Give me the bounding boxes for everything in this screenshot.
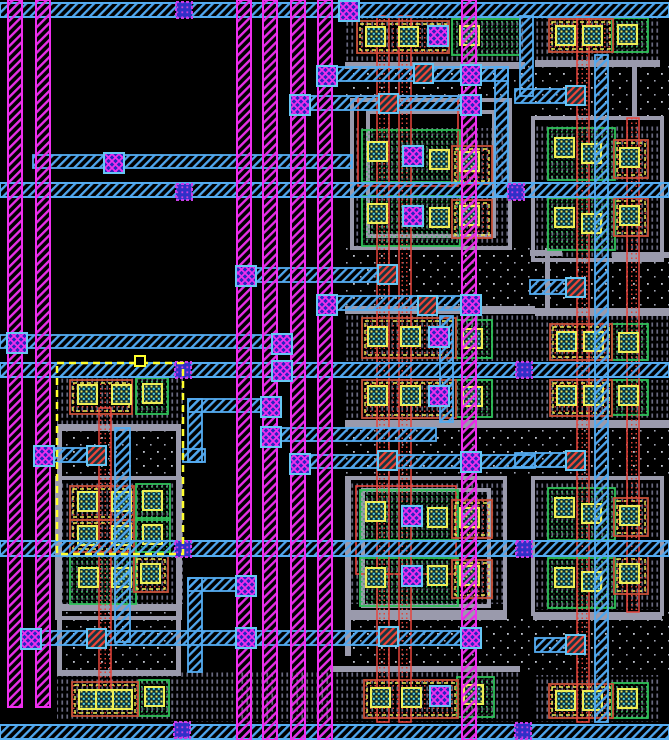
via-blue[interactable]: [508, 184, 524, 200]
contact[interactable]: [618, 25, 637, 44]
contact[interactable]: [145, 687, 164, 706]
substrate-contact[interactable]: [87, 446, 106, 465]
via-m1-m2[interactable]: [261, 397, 281, 417]
via-m1-m2[interactable]: [461, 295, 481, 315]
metal2-stripe[interactable]: [318, 0, 332, 740]
via-m1-m2[interactable]: [430, 686, 450, 706]
via-blue[interactable]: [516, 362, 532, 378]
via-m1-m2[interactable]: [261, 427, 281, 447]
contact[interactable]: [113, 690, 132, 709]
via-blue[interactable]: [174, 722, 190, 738]
via-m1-m2[interactable]: [104, 153, 124, 173]
via-m1-m2[interactable]: [272, 334, 292, 354]
metal1-strap[interactable]: [520, 16, 533, 96]
contact[interactable]: [368, 386, 387, 405]
contact[interactable]: [79, 568, 98, 587]
via-m1-m2[interactable]: [317, 66, 337, 86]
substrate-contact[interactable]: [87, 629, 106, 648]
contact[interactable]: [371, 688, 390, 707]
via-m1-m2[interactable]: [34, 446, 54, 466]
metal2-stripe[interactable]: [36, 0, 50, 707]
via-m1-m2[interactable]: [429, 327, 449, 347]
via-m1-m2[interactable]: [429, 386, 449, 406]
contact[interactable]: [430, 208, 449, 227]
contact[interactable]: [402, 688, 421, 707]
tool-marker[interactable]: [135, 356, 145, 366]
contact[interactable]: [555, 498, 574, 517]
via-m1-m2[interactable]: [236, 628, 256, 648]
substrate-contact[interactable]: [566, 451, 585, 470]
metal1-rail[interactable]: [0, 3, 669, 17]
metal1-strap[interactable]: [115, 428, 130, 642]
well-bar[interactable]: [545, 248, 550, 310]
via-m1-m2[interactable]: [461, 452, 481, 472]
contact[interactable]: [401, 327, 420, 346]
via-m1-m2[interactable]: [236, 266, 256, 286]
well-bar[interactable]: [58, 670, 178, 676]
contact[interactable]: [557, 386, 576, 405]
contact[interactable]: [620, 206, 639, 225]
contact[interactable]: [399, 27, 418, 46]
contact[interactable]: [620, 148, 639, 167]
substrate-contact[interactable]: [378, 265, 397, 284]
via-blue[interactable]: [176, 184, 192, 200]
substrate-contact[interactable]: [414, 64, 433, 83]
well-bar[interactable]: [330, 666, 520, 672]
contact[interactable]: [143, 384, 162, 403]
ic-layout-view[interactable]: [0, 0, 669, 740]
via-m1-m2[interactable]: [461, 65, 481, 85]
contact[interactable]: [556, 26, 575, 45]
contact[interactable]: [619, 386, 638, 405]
contact[interactable]: [78, 385, 97, 404]
contact[interactable]: [620, 506, 639, 525]
metal1-rail[interactable]: [0, 363, 669, 377]
contact[interactable]: [366, 27, 385, 46]
contact[interactable]: [366, 568, 385, 587]
via-m1-m2[interactable]: [403, 146, 423, 166]
substrate-contact[interactable]: [566, 635, 585, 654]
metal1-trace[interactable]: [262, 428, 436, 441]
via-m1-m2[interactable]: [403, 206, 423, 226]
contact[interactable]: [618, 689, 637, 708]
substrate-contact[interactable]: [379, 627, 398, 646]
contact[interactable]: [368, 142, 387, 161]
contact[interactable]: [556, 691, 575, 710]
substrate-contact[interactable]: [378, 451, 397, 470]
metal1-strap[interactable]: [188, 399, 202, 462]
via-m1-m2[interactable]: [290, 95, 310, 115]
via-m1-m2[interactable]: [21, 629, 41, 649]
contact[interactable]: [428, 566, 447, 585]
metal1-strap[interactable]: [188, 578, 202, 672]
contact[interactable]: [368, 204, 387, 223]
metal1-rail[interactable]: [0, 725, 669, 739]
via-m1-m2[interactable]: [339, 1, 359, 21]
via-m1-m2[interactable]: [236, 576, 256, 596]
via-m1-m2[interactable]: [428, 26, 448, 46]
via-m1-m2[interactable]: [461, 628, 481, 648]
substrate-contact[interactable]: [566, 278, 585, 297]
via-m1-m2[interactable]: [290, 454, 310, 474]
contact[interactable]: [619, 333, 638, 352]
via-blue[interactable]: [516, 541, 532, 557]
contact[interactable]: [368, 327, 387, 346]
contact[interactable]: [583, 26, 602, 45]
substrate-contact[interactable]: [418, 296, 437, 315]
substrate-contact[interactable]: [379, 94, 398, 113]
metal1-rail[interactable]: [0, 183, 669, 197]
via-m1-m2[interactable]: [402, 566, 422, 586]
contact[interactable]: [620, 564, 639, 583]
contact[interactable]: [555, 568, 574, 587]
via-m1-m2[interactable]: [272, 361, 292, 381]
substrate-contact[interactable]: [566, 86, 585, 105]
metal1-strap[interactable]: [495, 67, 508, 196]
metal1-strap[interactable]: [595, 55, 608, 722]
via-m1-m2[interactable]: [402, 506, 422, 526]
contact[interactable]: [428, 508, 447, 527]
layout-canvas[interactable]: [0, 0, 669, 740]
via-m1-m2[interactable]: [461, 95, 481, 115]
contact[interactable]: [143, 491, 162, 510]
metal1-trace[interactable]: [318, 296, 480, 310]
contact[interactable]: [366, 502, 385, 521]
via-m1-m2[interactable]: [317, 295, 337, 315]
contact[interactable]: [401, 386, 420, 405]
via-blue[interactable]: [176, 2, 192, 18]
well-bar[interactable]: [632, 62, 637, 118]
contact[interactable]: [78, 492, 97, 511]
contact[interactable]: [430, 150, 449, 169]
contact[interactable]: [555, 138, 574, 157]
via-blue[interactable]: [515, 723, 531, 739]
contact[interactable]: [141, 564, 160, 583]
contact[interactable]: [555, 208, 574, 227]
via-m1-m2[interactable]: [7, 333, 27, 353]
contact[interactable]: [112, 385, 131, 404]
contact[interactable]: [557, 332, 576, 351]
